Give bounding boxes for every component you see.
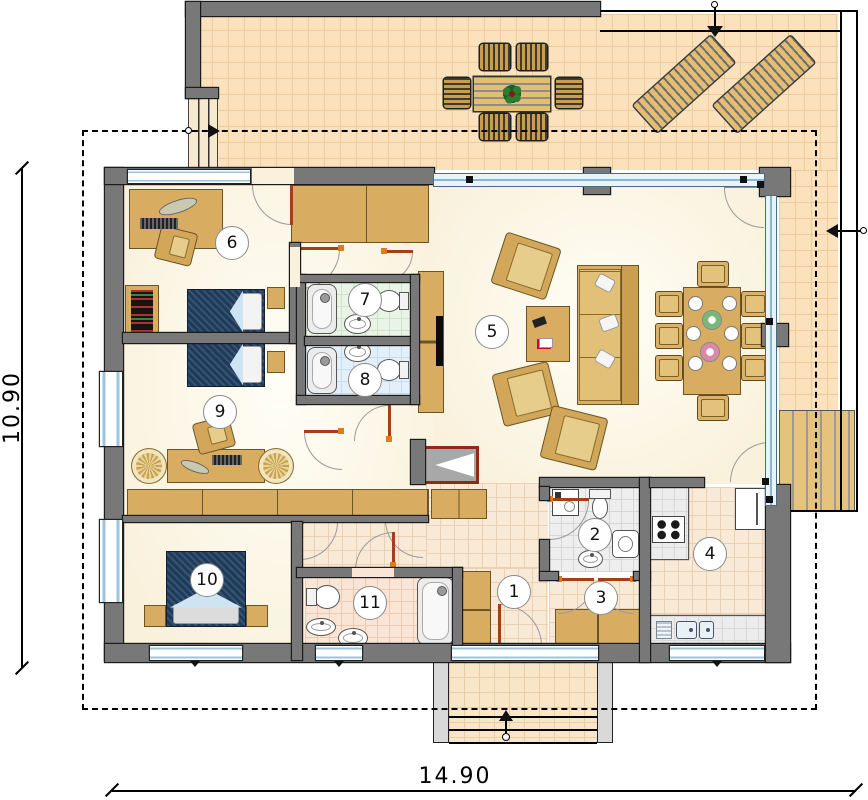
entrance-arrow-node: [502, 733, 510, 741]
room-number: 4: [705, 544, 716, 564]
gutter-node: [860, 227, 867, 234]
room-label-5: 5: [475, 315, 509, 349]
room-number: 6: [227, 233, 238, 253]
floor-plan: 1 2 3 4 5 6 7 8 9 10 11 10.90 14.90: [0, 0, 868, 800]
terrace-edge-line: [600, 30, 840, 32]
room-number: 11: [359, 593, 381, 613]
terrace-wall-nub: [186, 88, 218, 98]
outdoor-chair: [556, 78, 582, 108]
room-label-1: 1: [497, 575, 531, 609]
gutter-node: [711, 1, 718, 8]
room-number: 2: [590, 525, 601, 545]
room-number: 8: [360, 370, 371, 390]
room-number: 10: [196, 570, 218, 590]
room-label-3: 3: [584, 581, 618, 615]
outdoor-chair: [517, 44, 547, 70]
porch-step-line: [449, 742, 597, 744]
terrace-edge-line: [600, 10, 858, 12]
room-label-8: 8: [348, 363, 382, 397]
room-number: 1: [509, 582, 520, 602]
room-label-2: 2: [578, 518, 612, 552]
outdoor-chair: [480, 44, 510, 70]
dimension-label-vertical: 10.90: [0, 386, 24, 444]
room-number: 5: [487, 322, 498, 342]
terrace-edge-line: [840, 10, 842, 510]
outdoor-chair: [444, 78, 470, 108]
dimension-value: 14.90: [419, 764, 492, 789]
table-plant: [499, 81, 525, 107]
entrance-arrow-line: [505, 721, 507, 733]
room-number: 3: [596, 588, 607, 608]
dimension-line-horizontal: [112, 790, 856, 792]
terrace-wall-left: [186, 2, 200, 98]
terrace-wall-top: [186, 2, 600, 16]
room-label-7: 7: [348, 283, 382, 317]
room-number: 7: [360, 290, 371, 310]
terrace-edge-line: [856, 10, 858, 512]
roof-outline-dashed: [82, 130, 817, 710]
room-label-4: 4: [693, 537, 727, 571]
porch-step-line: [449, 729, 597, 731]
porch-step-line: [449, 716, 597, 718]
room-number: 9: [215, 402, 226, 422]
room-label-9: 9: [203, 395, 237, 429]
dimension-value: 10.90: [0, 371, 25, 444]
room-label-11: 11: [353, 586, 387, 620]
room-label-6: 6: [215, 226, 249, 260]
dimension-label-horizontal: 14.90: [389, 764, 521, 788]
room-label-10: 10: [190, 563, 224, 597]
slope-node: [185, 127, 192, 134]
